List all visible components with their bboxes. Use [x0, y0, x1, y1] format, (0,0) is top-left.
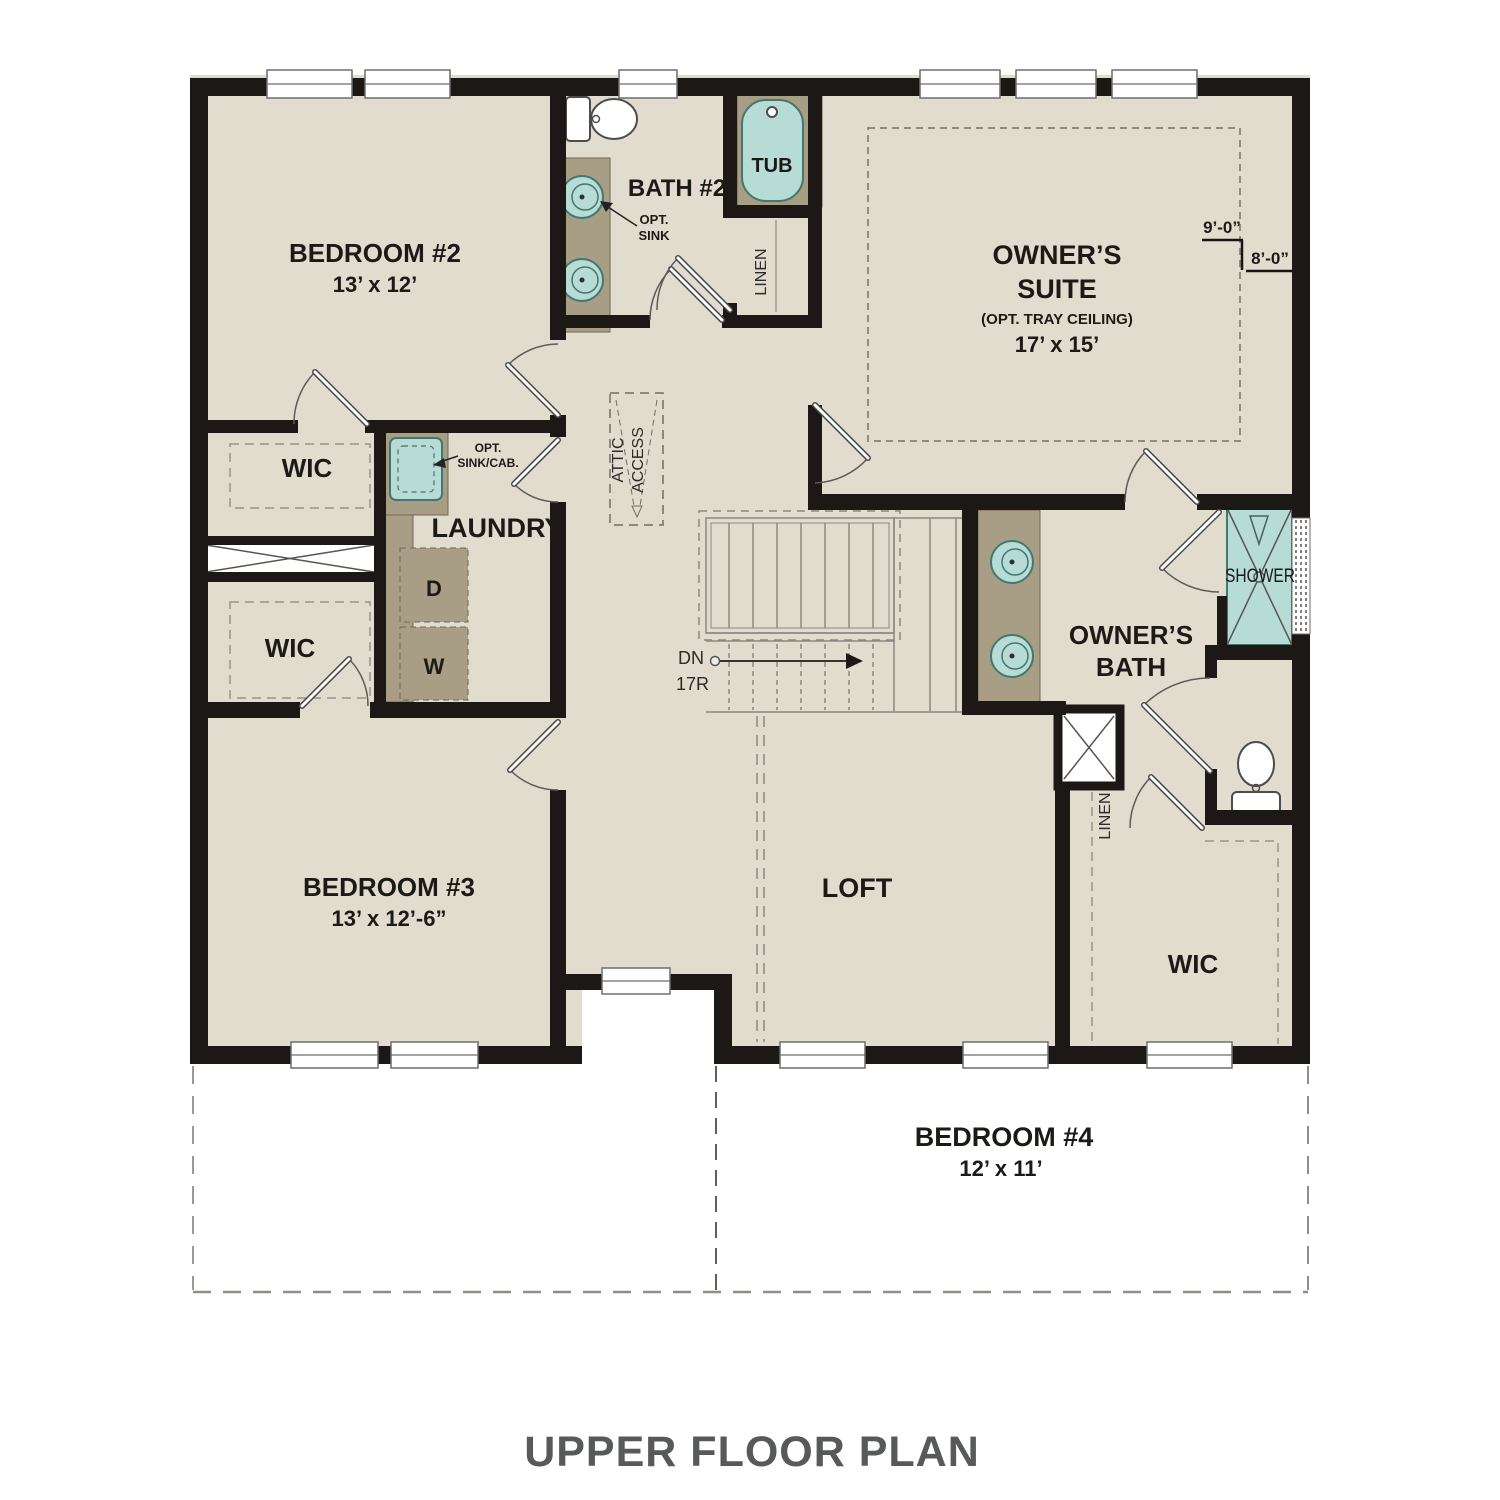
window	[963, 1042, 1048, 1068]
bath2-toilet-icon	[566, 97, 637, 141]
floor-plan-page: DN 17R ATTIC ACCESS	[0, 0, 1500, 1500]
window	[267, 70, 352, 98]
opt-sink-cab-label-2: SINK/CAB.	[457, 456, 518, 470]
opt-sink-label-1: OPT.	[640, 212, 669, 227]
stairs-dn-label: DN	[678, 648, 704, 668]
tub-label: TUB	[751, 155, 792, 177]
wic-lower-label: WIC	[265, 633, 316, 663]
bedroom4-dims: 12’ x 11’	[959, 1156, 1042, 1181]
dryer-label: D	[426, 576, 442, 601]
room-wic-upper	[206, 433, 374, 536]
window	[1016, 70, 1096, 98]
bedroom3-dims: 13’ x 12’-6”	[332, 906, 447, 931]
linen-upper-label: LINEN	[753, 248, 770, 295]
room-wic-suite	[1070, 825, 1292, 1046]
window	[391, 1042, 478, 1068]
attic-access-label-1: ATTIC	[610, 437, 627, 482]
stairs-risers-label: 17R	[676, 674, 709, 694]
bedroom2-label: BEDROOM #2	[289, 238, 461, 268]
bath2-sink-1	[561, 176, 603, 218]
window	[365, 70, 450, 98]
window	[920, 70, 1000, 98]
window	[1112, 70, 1197, 98]
opt-sink-cab-label-1: OPT.	[475, 441, 502, 455]
loft-label: LOFT	[822, 873, 893, 903]
page-title: UPPER FLOOR PLAN	[524, 1428, 980, 1476]
window	[780, 1042, 865, 1068]
tub-faucet-icon	[767, 107, 777, 117]
owners-suite-label-2: SUITE	[1017, 274, 1097, 304]
bedroom4-label: BEDROOM #4	[915, 1122, 1094, 1152]
window	[619, 70, 677, 98]
bath2-label: BATH #2	[628, 175, 726, 202]
wic-suite-label: WIC	[1168, 949, 1219, 979]
window	[1147, 1042, 1232, 1068]
opt-sink-label-2: SINK	[638, 228, 670, 243]
ceiling-8-label: 8’-0”	[1251, 249, 1289, 268]
owners-suite-dims: 17’ x 15’	[1015, 332, 1099, 357]
owners-suite-label-1: OWNER’S	[992, 240, 1121, 270]
washer-label: W	[424, 654, 445, 679]
stair-direction-origin	[711, 657, 720, 666]
wic-upper-label: WIC	[282, 453, 333, 483]
window	[602, 968, 670, 994]
bedroom2-dims: 13’ x 12’	[333, 272, 417, 297]
linen-lower-label: LINEN	[1097, 792, 1114, 839]
owners-bath-label-2: BATH	[1096, 652, 1166, 682]
upper-floor-plan: DN 17R ATTIC ACCESS	[0, 0, 1500, 1500]
owners-sink-2	[991, 635, 1033, 677]
attic-access-label-2: ACCESS	[630, 427, 647, 493]
room-water-closet	[1217, 660, 1292, 810]
bath2-sink-2	[561, 259, 603, 301]
laundry-label: LAUNDRY	[432, 513, 563, 543]
window	[291, 1042, 378, 1068]
owners-bath-label-1: OWNER’S	[1069, 620, 1193, 650]
ceiling-9-label: 9’-0”	[1203, 218, 1241, 237]
shower-label: SHOWER	[1225, 565, 1295, 587]
owners-sink-1	[991, 541, 1033, 583]
owners-suite-note: (OPT. TRAY CEILING)	[981, 311, 1133, 328]
bedroom3-label: BEDROOM #3	[303, 872, 475, 902]
